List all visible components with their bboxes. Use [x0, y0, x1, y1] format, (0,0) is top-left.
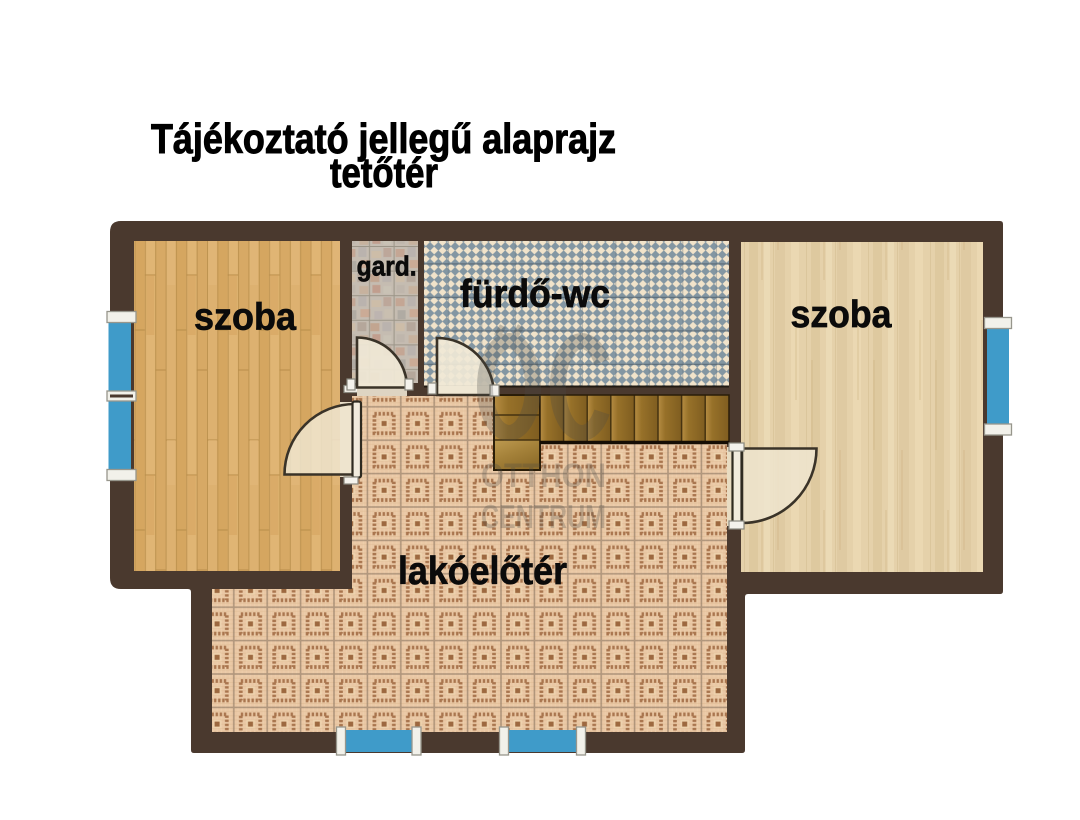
svg-text:OTTHON: OTTHON: [481, 457, 606, 495]
svg-text:fürdő-wc: fürdő-wc: [460, 273, 610, 316]
svg-text:gard.: gard.: [357, 251, 417, 282]
svg-text:tetőtér: tetőtér: [330, 149, 438, 196]
svg-text:lakóelőtér: lakóelőtér: [398, 550, 567, 593]
svg-text:CENTRUM: CENTRUM: [481, 498, 606, 535]
svg-text:szoba: szoba: [791, 294, 893, 336]
svg-text:szoba: szoba: [194, 297, 297, 339]
